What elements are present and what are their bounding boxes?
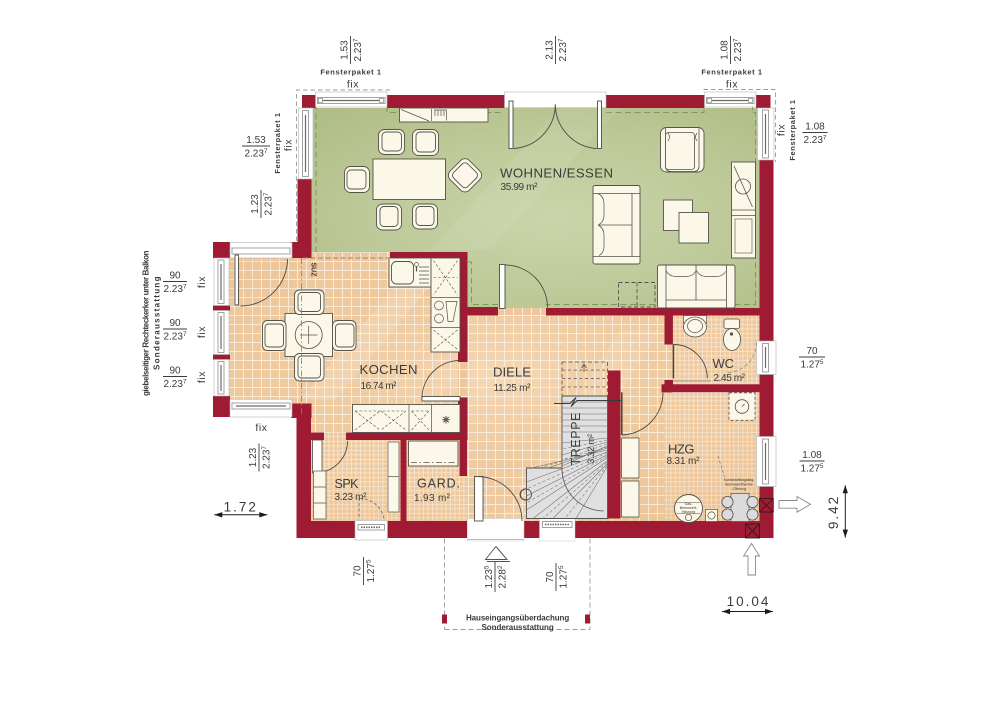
svg-text:1.08: 1.08 [720,40,731,60]
svg-text:16.74 m²: 16.74 m² [361,381,398,392]
svg-text:1.08: 1.08 [805,122,825,133]
svg-text:9.42: 9.42 [826,495,841,529]
svg-text:Fensterpaket 1: Fensterpaket 1 [788,99,797,160]
svg-text:11.25 m²: 11.25 m² [494,383,532,394]
svg-text:2.45 m²: 2.45 m² [714,373,746,384]
svg-text:35.99 m²: 35.99 m² [501,182,539,193]
svg-text:fix: fix [283,139,295,151]
svg-text:DIELE: DIELE [493,365,531,380]
svg-text:70: 70 [353,565,364,577]
svg-text:1.53: 1.53 [246,135,266,146]
svg-text:KOCHEN: KOCHEN [360,362,418,377]
svg-text:TREPPE: TREPPE [569,413,583,466]
svg-text:giebelseitiger Rechteckerker u: giebelseitiger Rechteckerker unter Balko… [142,250,151,396]
svg-text:Sonderausstattung: Sonderausstattung [153,276,162,370]
svg-text:HZG: HZG [668,442,695,457]
svg-text:1.23: 1.23 [250,194,261,214]
svg-text:WC: WC [713,356,735,371]
svg-text:Kunststoffabgasltg.: Kunststoffabgasltg. [724,478,755,482]
svg-text:1.08: 1.08 [802,450,822,461]
svg-text:Brennwerttherme: Brennwerttherme [725,483,753,487]
svg-text:8.31 m²: 8.31 m² [667,456,701,467]
svg-text:1.23: 1.23 [248,447,259,467]
svg-text:1.93 m²: 1.93 m² [414,493,451,504]
svg-text:70: 70 [806,346,818,357]
svg-text:1.53: 1.53 [340,40,351,60]
svg-text:90: 90 [169,318,181,329]
svg-text:fix: fix [196,371,208,383]
svg-text:3.23 m²: 3.23 m² [335,492,368,503]
svg-text:-Öffnung: -Öffnung [732,487,746,491]
svg-text:SUZ: SUZ [310,263,317,278]
svg-text:2.13: 2.13 [545,40,556,60]
svg-text:3.32 m²: 3.32 m² [586,434,597,464]
svg-text:fix: fix [726,79,738,91]
svg-text:fix: fix [347,79,359,91]
svg-text:SPK: SPK [335,477,360,491]
svg-text:Heizung: Heizung [682,510,695,514]
svg-text:fix: fix [196,276,208,288]
svg-text:Hauseingangsüberdachung: Hauseingangsüberdachung [466,614,570,623]
svg-text:1.72: 1.72 [224,500,258,515]
svg-text:Fensterpaket 1: Fensterpaket 1 [701,68,762,77]
svg-text:70: 70 [545,571,556,583]
svg-text:WOHNEN/ESSEN: WOHNEN/ESSEN [500,166,613,181]
svg-text:fix: fix [776,124,788,136]
svg-text:GARD.: GARD. [417,477,460,491]
svg-text:Fensterpaket 1: Fensterpaket 1 [273,112,282,173]
svg-text:90: 90 [169,271,181,282]
svg-text:Sonderausstattung: Sonderausstattung [482,623,555,632]
svg-text:fix: fix [196,326,208,338]
svg-text:Fensterpaket 1: Fensterpaket 1 [320,68,381,77]
svg-text:90: 90 [169,366,181,377]
svg-text:fix: fix [255,422,267,434]
svg-text:10.04: 10.04 [727,594,771,609]
